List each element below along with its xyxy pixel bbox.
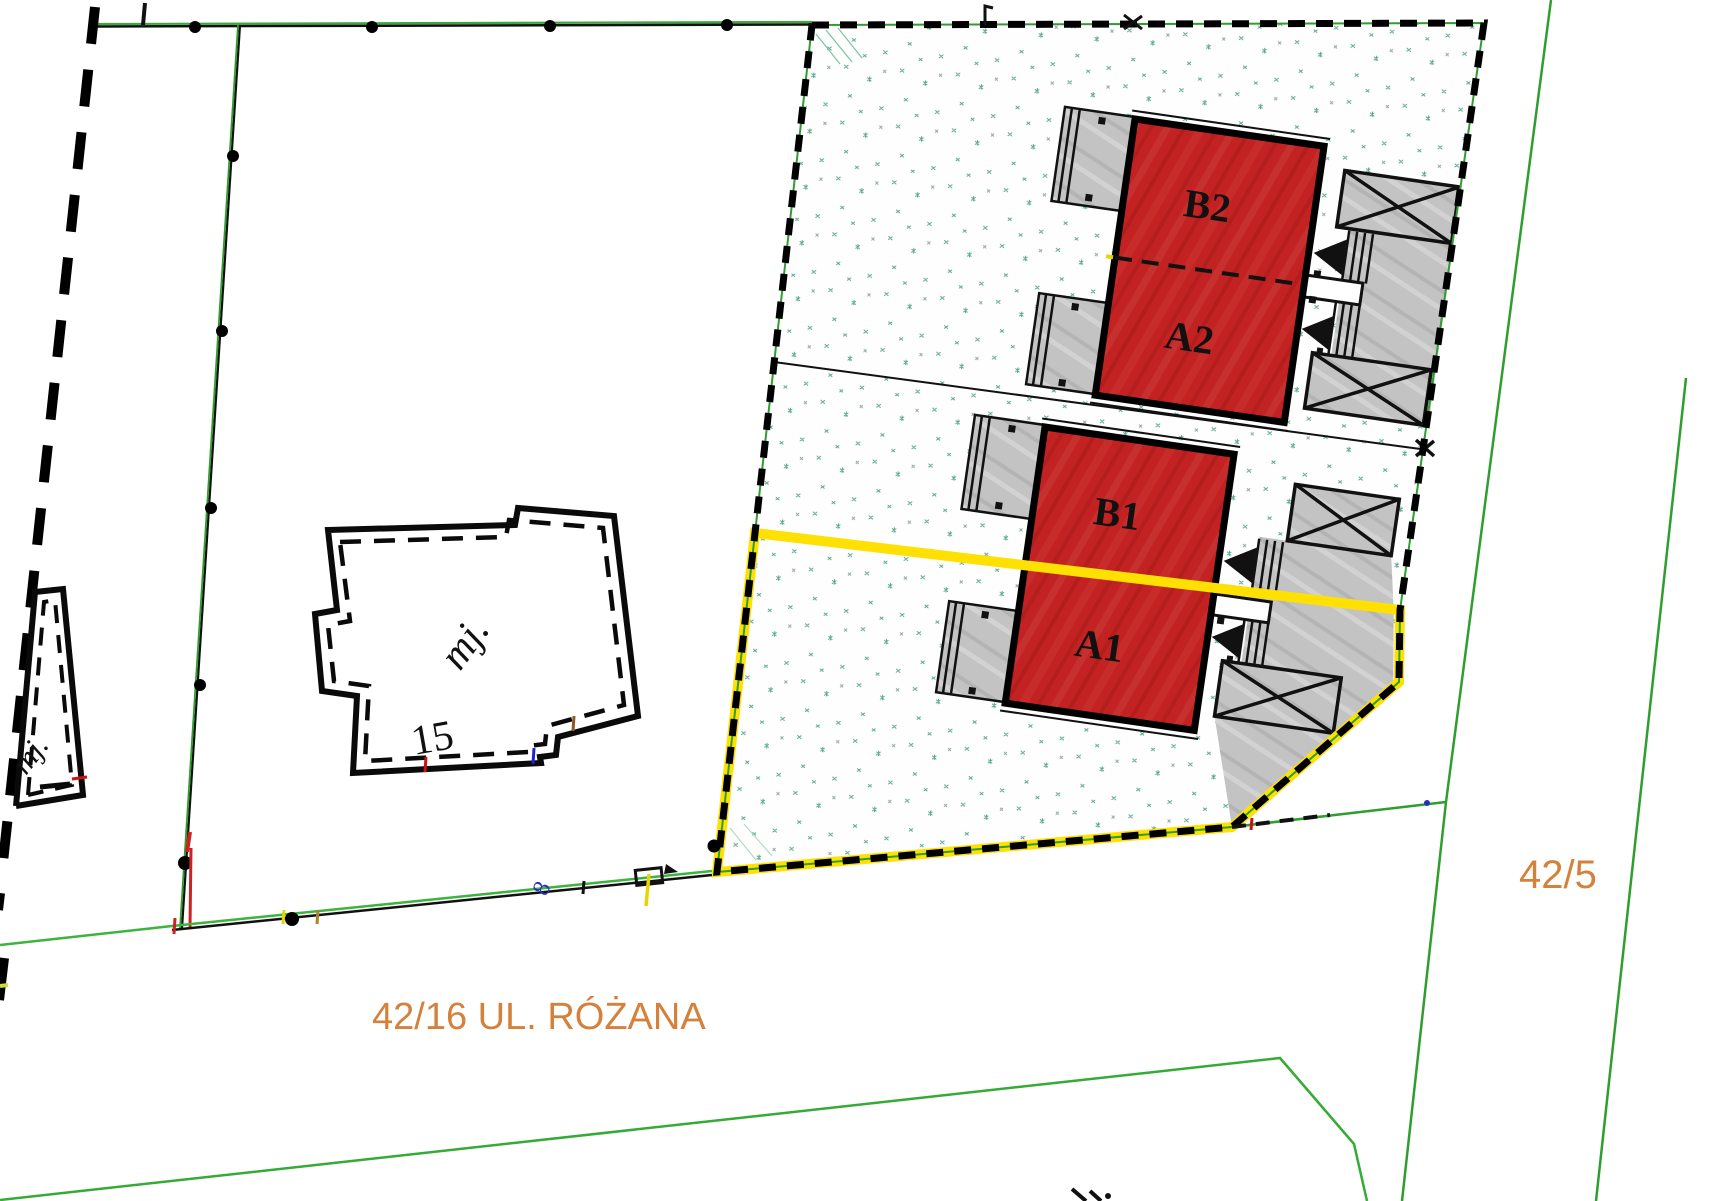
svg-text:A2: A2: [1162, 312, 1217, 364]
svg-text:B1: B1: [1091, 488, 1144, 539]
svg-text:A1: A1: [1072, 620, 1127, 672]
svg-text:15: 15: [408, 712, 457, 765]
svg-text:42/16 UL. RÓŻANA: 42/16 UL. RÓŻANA: [372, 996, 706, 1038]
svg-text:B2: B2: [1181, 180, 1234, 231]
svg-text:42/5: 42/5: [1519, 853, 1597, 897]
